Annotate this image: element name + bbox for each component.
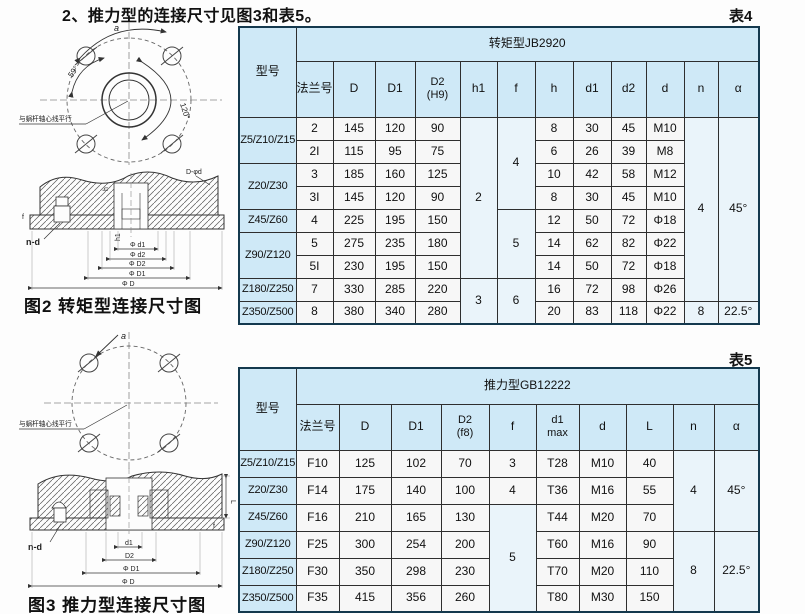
cell: 260 bbox=[441, 585, 489, 612]
column-header: n bbox=[673, 404, 714, 450]
cell: Z45/Z60 bbox=[239, 209, 296, 232]
cell: 6 bbox=[535, 140, 573, 163]
cell: 3 bbox=[489, 450, 536, 477]
cell: 16 bbox=[535, 278, 573, 301]
cell: 26 bbox=[573, 140, 611, 163]
cell: Z20/Z30 bbox=[239, 477, 296, 504]
table-row: Z5/Z10/Z15 2 145 120 90 2 4 8 30 45 M10 … bbox=[239, 117, 759, 140]
cell: M10 bbox=[646, 186, 684, 209]
cell: 160 bbox=[375, 163, 415, 186]
cell: Z5/Z10/Z15 bbox=[239, 117, 296, 163]
dim-D2-label: D2 bbox=[125, 553, 134, 560]
cell: 50 bbox=[573, 255, 611, 278]
cell: 8 bbox=[535, 186, 573, 209]
cell: 125 bbox=[339, 450, 391, 477]
dim-D1-label: Φ D1 bbox=[129, 271, 146, 278]
dim-D-label: Φ D bbox=[122, 281, 135, 288]
cell: F35 bbox=[296, 585, 339, 612]
cell: 70 bbox=[626, 504, 673, 531]
cell: 12 bbox=[535, 209, 573, 232]
cell: Φ18 bbox=[646, 255, 684, 278]
cell: Z5/Z10/Z15 bbox=[239, 450, 296, 477]
header-line: max bbox=[537, 427, 579, 440]
table-row: 法兰号 D D1 D2(f8) f d1max d L n α bbox=[239, 404, 759, 450]
cell: Φ18 bbox=[646, 209, 684, 232]
cell: 220 bbox=[415, 278, 460, 301]
cell: 150 bbox=[626, 585, 673, 612]
dim-D-label: Φ D bbox=[122, 579, 135, 586]
cell: 2 bbox=[296, 117, 333, 140]
cell: 70 bbox=[441, 450, 489, 477]
angle120-label: 120° bbox=[178, 102, 192, 121]
cell: 82 bbox=[611, 232, 646, 255]
group-header: 转矩型JB2920 bbox=[296, 27, 759, 61]
cell: 8 bbox=[673, 531, 714, 612]
column-header: D2(H9) bbox=[415, 61, 460, 117]
cell: 254 bbox=[391, 531, 441, 558]
cell: 350 bbox=[339, 558, 391, 585]
cell: 180 bbox=[415, 232, 460, 255]
cell: 130 bbox=[441, 504, 489, 531]
cell: 125 bbox=[415, 163, 460, 186]
cell: 30 bbox=[573, 117, 611, 140]
a-arc-arrow bbox=[80, 29, 166, 58]
column-header: d bbox=[579, 404, 626, 450]
cell: 185 bbox=[333, 163, 375, 186]
cell: T36 bbox=[536, 477, 579, 504]
cell: 102 bbox=[391, 450, 441, 477]
cell: 7 bbox=[296, 278, 333, 301]
table-row: Z5/Z10/Z15 F10 125 102 70 3 T28 M10 40 4… bbox=[239, 450, 759, 477]
column-header: d1 bbox=[573, 61, 611, 117]
column-header: D bbox=[339, 404, 391, 450]
cell: T60 bbox=[536, 531, 579, 558]
a-label: a bbox=[114, 23, 119, 33]
cell: 150 bbox=[415, 255, 460, 278]
cell: 4 bbox=[296, 209, 333, 232]
cell: 98 bbox=[611, 278, 646, 301]
cell: 298 bbox=[391, 558, 441, 585]
column-header: α bbox=[714, 404, 759, 450]
column-header: n bbox=[684, 61, 718, 117]
cell: M8 bbox=[646, 140, 684, 163]
nd-label: n-d bbox=[26, 237, 40, 247]
header-line: (f8) bbox=[442, 427, 489, 440]
h-label: h bbox=[103, 187, 110, 191]
column-header: f bbox=[497, 61, 535, 117]
cell: 14 bbox=[535, 255, 573, 278]
cell: 39 bbox=[611, 140, 646, 163]
cell: 22.5° bbox=[714, 531, 759, 612]
cell: 72 bbox=[573, 278, 611, 301]
column-header: D1 bbox=[375, 61, 415, 117]
cell: 225 bbox=[333, 209, 375, 232]
cell: 8 bbox=[535, 117, 573, 140]
cell: 45 bbox=[611, 186, 646, 209]
cell: 356 bbox=[391, 585, 441, 612]
L-label: L bbox=[229, 500, 236, 504]
cell: 4 bbox=[684, 117, 718, 301]
cell: 195 bbox=[375, 209, 415, 232]
cell: F16 bbox=[296, 504, 339, 531]
cell: 55 bbox=[626, 477, 673, 504]
cell: 4 bbox=[497, 117, 535, 209]
cell: 45° bbox=[714, 450, 759, 531]
cell: Φ22 bbox=[646, 301, 684, 324]
cell: 235 bbox=[375, 232, 415, 255]
column-header: 法兰号 bbox=[296, 404, 339, 450]
dim-d1-label: d1 bbox=[125, 540, 133, 547]
cell: 165 bbox=[391, 504, 441, 531]
cell: 50 bbox=[573, 209, 611, 232]
header-line: (H9) bbox=[416, 89, 460, 102]
cell: F14 bbox=[296, 477, 339, 504]
cell: M16 bbox=[579, 531, 626, 558]
cell: 4 bbox=[673, 450, 714, 531]
cell: 14 bbox=[535, 232, 573, 255]
dim-d2-label: Φ d2 bbox=[130, 252, 145, 259]
cell: 3I bbox=[296, 186, 333, 209]
figure3-caption: 图3 推力型连接尺寸图 bbox=[28, 591, 206, 614]
column-header: D1 bbox=[391, 404, 441, 450]
column-header: 型号 bbox=[239, 368, 296, 450]
table-row: 型号 推力型GB12222 bbox=[239, 368, 759, 404]
cell: 100 bbox=[441, 477, 489, 504]
cell: 72 bbox=[611, 209, 646, 232]
column-header: d bbox=[646, 61, 684, 117]
cell: M10 bbox=[579, 450, 626, 477]
cell: 118 bbox=[611, 301, 646, 324]
cell: 230 bbox=[333, 255, 375, 278]
column-header: h1 bbox=[460, 61, 497, 117]
cell: 30 bbox=[573, 186, 611, 209]
cell: 62 bbox=[573, 232, 611, 255]
centerlines bbox=[44, 332, 218, 469]
cell: Z90/Z120 bbox=[239, 232, 296, 278]
cell: 75 bbox=[415, 140, 460, 163]
cell: T28 bbox=[536, 450, 579, 477]
cell: T44 bbox=[536, 504, 579, 531]
cell: M12 bbox=[646, 163, 684, 186]
cell: Z350/Z500 bbox=[239, 585, 296, 612]
cell: M30 bbox=[579, 585, 626, 612]
header-line: D2 bbox=[416, 76, 460, 89]
torque-table: 型号 转矩型JB2920 法兰号 D D1 D2(H9) h1 f h d1 d… bbox=[238, 26, 760, 325]
cell: 2I bbox=[296, 140, 333, 163]
cell: 380 bbox=[333, 301, 375, 324]
figure2-section-diagram: n-d D-φd f h h1 Φ d1 Φ d2 Φ D2 Φ D1 Φ D bbox=[10, 167, 238, 293]
cell: M16 bbox=[579, 477, 626, 504]
thrust-table: 型号 推力型GB12222 法兰号 D D1 D2(f8) f d1max d … bbox=[238, 367, 760, 613]
cell: 5I bbox=[296, 255, 333, 278]
cell: 58 bbox=[611, 163, 646, 186]
cell: 175 bbox=[339, 477, 391, 504]
column-header: 法兰号 bbox=[296, 61, 333, 117]
cell: 72 bbox=[611, 255, 646, 278]
cell: Z350/Z500 bbox=[239, 301, 296, 324]
cell: 300 bbox=[339, 531, 391, 558]
cell: Φ26 bbox=[646, 278, 684, 301]
figure2-caption: 图2 转矩型连接尺寸图 bbox=[24, 292, 202, 317]
dim-D2-label: Φ D2 bbox=[129, 261, 146, 268]
column-header: f bbox=[489, 404, 536, 450]
cell: 8 bbox=[296, 301, 333, 324]
cell: 40 bbox=[626, 450, 673, 477]
cell: Z45/Z60 bbox=[239, 504, 296, 531]
cell: Z180/Z250 bbox=[239, 278, 296, 301]
parallel-label: 与蜗杆轴心线平行 bbox=[19, 114, 72, 123]
cell: 10 bbox=[535, 163, 573, 186]
cell: 4 bbox=[489, 477, 536, 504]
figure3-bolt-circle-diagram: a 与蜗杆轴心线平行 bbox=[14, 330, 236, 470]
column-header: α bbox=[718, 61, 759, 117]
cell: 200 bbox=[441, 531, 489, 558]
cell: 415 bbox=[339, 585, 391, 612]
cell: 210 bbox=[339, 504, 391, 531]
cell: 83 bbox=[573, 301, 611, 324]
header-line: d1 bbox=[537, 414, 579, 427]
cell: 150 bbox=[415, 209, 460, 232]
cell: M20 bbox=[579, 504, 626, 531]
cell: 90 bbox=[626, 531, 673, 558]
cell: 115 bbox=[333, 140, 375, 163]
cell: Z180/Z250 bbox=[239, 558, 296, 585]
cell: 3 bbox=[460, 278, 497, 324]
cell: 280 bbox=[415, 301, 460, 324]
dim-D1-label: Φ D1 bbox=[123, 566, 140, 573]
cell: Z20/Z30 bbox=[239, 163, 296, 209]
cell: 330 bbox=[333, 278, 375, 301]
cell: 2 bbox=[460, 117, 497, 278]
nd-label: n-d bbox=[28, 542, 42, 552]
column-header: D bbox=[333, 61, 375, 117]
table-row: 型号 转矩型JB2920 bbox=[239, 27, 759, 61]
cell: 5 bbox=[497, 209, 535, 278]
cell: 140 bbox=[391, 477, 441, 504]
cell: 110 bbox=[626, 558, 673, 585]
h1-label: h1 bbox=[115, 233, 122, 241]
cell: F25 bbox=[296, 531, 339, 558]
a-label: a bbox=[121, 331, 126, 341]
column-header: d2 bbox=[611, 61, 646, 117]
column-header: D2(f8) bbox=[441, 404, 489, 450]
cell: 5 bbox=[489, 504, 536, 612]
cell: 195 bbox=[375, 255, 415, 278]
cell: 145 bbox=[333, 117, 375, 140]
cell: 6 bbox=[497, 278, 535, 324]
figure2-bolt-circle-diagram: a 59° 120° 与蜗杆轴心线平行 bbox=[14, 20, 236, 166]
cell: 20 bbox=[535, 301, 573, 324]
cell: F10 bbox=[296, 450, 339, 477]
table4-label: 表4 bbox=[729, 5, 752, 26]
cell: 145 bbox=[333, 186, 375, 209]
cell: 45° bbox=[718, 117, 759, 301]
cell: Φ22 bbox=[646, 232, 684, 255]
cell: 230 bbox=[441, 558, 489, 585]
cell: 42 bbox=[573, 163, 611, 186]
f-label: f bbox=[22, 214, 24, 221]
cell: 120 bbox=[375, 117, 415, 140]
column-header: L bbox=[626, 404, 673, 450]
centerlines bbox=[40, 22, 222, 165]
cell: 3 bbox=[296, 163, 333, 186]
cell: 285 bbox=[375, 278, 415, 301]
cell: T70 bbox=[536, 558, 579, 585]
hole-note-label: D-φd bbox=[186, 169, 202, 176]
cell: F30 bbox=[296, 558, 339, 585]
cell: 22.5° bbox=[718, 301, 759, 324]
table-row: Z180/Z250 7 330 285 220 3 6 16 72 98 Φ26 bbox=[239, 278, 759, 301]
cell: 45 bbox=[611, 117, 646, 140]
cell: 8 bbox=[684, 301, 718, 324]
cell: M10 bbox=[646, 117, 684, 140]
cell: 275 bbox=[333, 232, 375, 255]
cell: M20 bbox=[579, 558, 626, 585]
group-header: 推力型GB12222 bbox=[296, 368, 759, 404]
cell: 90 bbox=[415, 117, 460, 140]
header-line: D2 bbox=[442, 414, 489, 427]
table-row: 法兰号 D D1 D2(H9) h1 f h d1 d2 d n α bbox=[239, 61, 759, 117]
cell: Z90/Z120 bbox=[239, 531, 296, 558]
column-header: 型号 bbox=[239, 27, 296, 117]
a-arrow bbox=[96, 335, 118, 356]
dim-d1-label: Φ d1 bbox=[130, 242, 145, 249]
cell: 90 bbox=[415, 186, 460, 209]
column-header: h bbox=[535, 61, 573, 117]
column-header: d1max bbox=[536, 404, 579, 450]
left-bolt bbox=[52, 502, 66, 522]
cell: 5 bbox=[296, 232, 333, 255]
figure3-section-diagram: n-d d1 D2 Φ D1 Φ D L f bbox=[10, 468, 238, 592]
cell: 95 bbox=[375, 140, 415, 163]
cell: T80 bbox=[536, 585, 579, 612]
cell: 120 bbox=[375, 186, 415, 209]
f-label: f bbox=[213, 523, 215, 530]
table-row: Z45/Z60 4 225 195 150 5 12 50 72 Φ18 bbox=[239, 209, 759, 232]
left-bolt bbox=[54, 197, 70, 222]
document-page: 2、推力型的连接尺寸见图3和表5。 表4 表5 a 59° 120° bbox=[0, 0, 805, 614]
parallel-label: 与蜗杆轴心线平行 bbox=[19, 419, 72, 428]
cell: 340 bbox=[375, 301, 415, 324]
